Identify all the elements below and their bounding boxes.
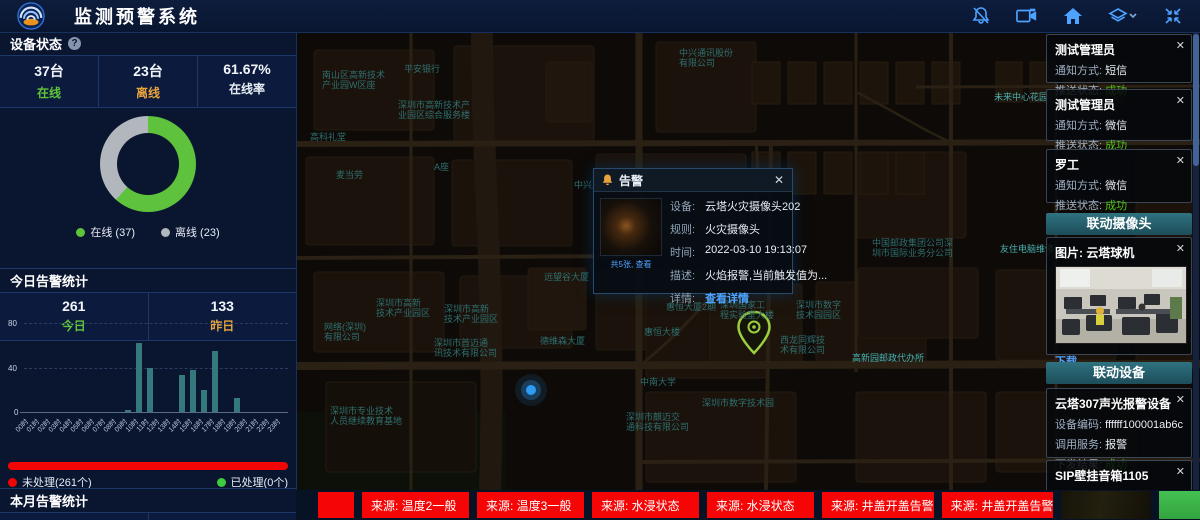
- field-value: 微信: [1105, 180, 1127, 192]
- stat-label: 在线率: [198, 80, 296, 97]
- device-status-stats: 37台在线23台离线61.67%在线率: [0, 56, 296, 108]
- map-place-label: 高新园邮政代办所: [852, 353, 924, 363]
- linked-device-card: ✕云塔307声光报警设备设备编码: ffffff100001ab6c调用服务: …: [1046, 388, 1192, 458]
- notification-field: 通知方式: 短信: [1055, 62, 1183, 78]
- linked-device-header: 联动设备: [1046, 362, 1192, 384]
- map-place-label: 深圳市麒迈交 通科技有限公司: [626, 412, 689, 432]
- field-value: 报警: [1105, 439, 1127, 451]
- map-place-label: A座: [434, 162, 449, 172]
- camera-snapshot-image[interactable]: [1055, 266, 1187, 344]
- video-camera-icon[interactable]: [1016, 6, 1038, 26]
- field-label: 详情:: [670, 290, 700, 306]
- field-value: 2022-03-10 19:13:07: [705, 244, 807, 260]
- map-place-label: 平安银行: [404, 64, 440, 74]
- ticker-alarm-item[interactable]: 来源: 温度3一般: [477, 492, 584, 518]
- ticker-alarm-item[interactable]: 来源: 井盖开盖告警: [942, 492, 1054, 518]
- left-stats-panel: 设备状态 ? 37台在线23台离线61.67%在线率 在线 (37)离线 (23…: [0, 32, 297, 520]
- today-alarms-header: 今日告警统计: [0, 268, 296, 293]
- stat-cell: 37台在线: [0, 56, 99, 107]
- popup-close-icon[interactable]: ✕: [774, 173, 784, 187]
- map-place-label: 中南大学: [640, 377, 676, 387]
- monitoring-dashboard: 监测预警系统: [0, 0, 1200, 520]
- alarm-bell-icon: [602, 174, 613, 186]
- map-place-label: 南山区高新技术 产业园W区座: [322, 70, 385, 90]
- field-value: 火灾摄像头: [705, 221, 760, 237]
- field-value: 微信: [1105, 120, 1127, 132]
- notification-name: 罗工: [1055, 156, 1183, 173]
- month-alarms-header: 本月告警统计: [0, 488, 296, 513]
- device-name: SIP壁挂音箱1105: [1055, 467, 1183, 484]
- device-status-donut-chart: [100, 116, 196, 212]
- alarm-fields: 设备:云塔火灾摄像头202规则:火灾摄像头时间:2022-03-10 19:13…: [670, 198, 827, 313]
- map-place-label: 中兴通讯股份 有限公司: [679, 48, 733, 68]
- month-alarms-section: 本月告警统计 7631146: [0, 488, 296, 520]
- linked-camera-header: 联动摄像头: [1046, 213, 1192, 235]
- field-label: 规则:: [670, 221, 700, 237]
- hourly-alarm-bar-chart: 8040000时01时02时03时04时05时06时07时08时09时10时11…: [0, 310, 296, 450]
- app-header: 监测预警系统: [0, 0, 1200, 33]
- ticker-alarm-item[interactable]: 来源: 水浸状态: [707, 492, 814, 518]
- bar: [136, 343, 142, 412]
- close-icon[interactable]: ✕: [1176, 39, 1185, 52]
- close-icon[interactable]: ✕: [1176, 94, 1185, 107]
- close-icon[interactable]: ✕: [1176, 465, 1185, 478]
- device-status-header: 设备状态 ?: [0, 32, 296, 56]
- ticker-alarm-item[interactable]: 来源: 井盖开盖告警: [822, 492, 934, 518]
- alarm-popup-header: 告警 ✕: [594, 169, 792, 192]
- ticker-alarm-item[interactable]: 来源: 温度2一般: [362, 492, 469, 518]
- y-tick-label: 80: [8, 319, 17, 328]
- map-place-label: 网络(深圳) 有限公司: [324, 322, 366, 342]
- red-dot-icon: [8, 478, 17, 487]
- help-icon[interactable]: ?: [68, 37, 81, 50]
- y-tick-label: 40: [8, 364, 17, 373]
- home-icon[interactable]: [1062, 6, 1084, 26]
- alarm-snapshot-wrap: 共5张, 查看: [600, 198, 662, 313]
- alarm-ticker: 来源: 温度2一般来源: 温度3一般来源: 水浸状态来源: 水浸状态来源: 井盖…: [296, 490, 1200, 520]
- map-place-label: 未来中心花园: [994, 92, 1048, 102]
- map-place-label: 深圳市数字技术园: [702, 398, 774, 408]
- bar: [125, 410, 131, 412]
- today-alarms-title: 今日告警统计: [10, 271, 88, 290]
- notification-card: ✕测试管理员通知方式: 微信推送状态: 成功: [1046, 89, 1192, 141]
- bar: [190, 370, 196, 412]
- stat-value: 61.67%: [198, 61, 296, 77]
- field-value: 成功: [1105, 200, 1127, 212]
- right-scrollbar: [1193, 32, 1199, 490]
- stat-value: 23台: [99, 61, 197, 81]
- map-place-label: 远望谷大厦: [544, 272, 589, 282]
- unhandled-progress-bar: [8, 462, 288, 470]
- page-title: 监测预警系统: [74, 3, 200, 29]
- stat-cell: 61.67%在线率: [198, 56, 296, 107]
- map-place-label: 西龙同辉技 术有限公司: [780, 335, 825, 355]
- field-value: ffffff100001ab6c: [1105, 419, 1183, 431]
- ticker-alarm-item[interactable]: 来源: 水浸状态: [592, 492, 699, 518]
- alarm-location-dot[interactable]: [515, 374, 547, 406]
- alarm-field-row: 规则:火灾摄像头: [670, 221, 827, 237]
- layers-icon[interactable]: [1108, 6, 1138, 26]
- map-place-label: 麦当劳: [336, 170, 363, 180]
- alarm-popup: 告警 ✕ 共5张, 查看 设备:云塔火灾摄像头202规则:火灾摄像头时间:202…: [593, 168, 793, 294]
- app-logo-icon: [14, 2, 48, 30]
- stat-value: 37台: [0, 61, 98, 81]
- snapshot-count-link[interactable]: 共5张, 查看: [600, 259, 662, 270]
- bar: [234, 398, 240, 412]
- fullscreen-icon[interactable]: [1162, 6, 1184, 26]
- device-field: 调用服务: 报警: [1055, 436, 1183, 452]
- close-icon[interactable]: ✕: [1176, 154, 1185, 167]
- legend-label: 离线 (23): [175, 224, 220, 240]
- bar: [212, 351, 218, 412]
- field-value: 火焰报警,当前触发值为...: [705, 267, 827, 283]
- legend-dot-icon: [161, 228, 170, 237]
- month-alarms-stats: 7631146: [0, 513, 296, 520]
- field-label: 时间:: [670, 244, 700, 260]
- alarm-field-row: 描述:火焰报警,当前触发值为...: [670, 267, 827, 283]
- stat-cell: 763: [0, 513, 149, 520]
- legend-item[interactable]: 离线 (23): [161, 224, 220, 240]
- notification-field: 通知方式: 微信: [1055, 177, 1183, 193]
- field-value: 云塔火灾摄像头202: [705, 198, 800, 214]
- alarm-popup-body: 共5张, 查看 设备:云塔火灾摄像头202规则:火灾摄像头时间:2022-03-…: [594, 192, 792, 313]
- notification-field: 通知方式: 微信: [1055, 117, 1183, 133]
- map-place-label: 深圳市首迈通 讯技术有限公司: [434, 338, 497, 358]
- field-value: 短信: [1105, 65, 1127, 77]
- month-alarms-title: 本月告警统计: [10, 491, 88, 510]
- stat-label: 离线: [99, 84, 197, 101]
- y-tick-label: 0: [14, 408, 18, 417]
- legend-item[interactable]: 在线 (37): [76, 224, 135, 240]
- map-place-label: 中国邮政集团公司深 圳市国际业务分公司: [872, 238, 953, 258]
- alarm-field-row: 设备:云塔火灾摄像头202: [670, 198, 827, 214]
- view-detail-link[interactable]: 查看详情: [705, 290, 749, 306]
- stat-cell: 1146: [149, 513, 297, 520]
- bar: [179, 375, 185, 412]
- map-place-label: 深圳市专业技术 人员继续教育基地: [330, 406, 402, 426]
- map-place-label: 德维森大厦: [540, 336, 585, 346]
- camera-snapshot-card: ✕ 图片: 云塔球机: [1046, 237, 1192, 355]
- camera-card-title: 图片: 云塔球机: [1055, 244, 1183, 261]
- legend-label: 在线 (37): [90, 224, 135, 240]
- close-icon[interactable]: ✕: [1176, 242, 1185, 255]
- gridline: [24, 368, 288, 369]
- field-label: 描述:: [670, 267, 700, 283]
- map-place-label: 深圳市高新技术产 业园区综合服务楼: [398, 100, 470, 120]
- donut-legend: 在线 (37)离线 (23): [0, 224, 296, 240]
- notification-card: ✕测试管理员通知方式: 短信推送状态: 成功: [1046, 34, 1192, 83]
- notification-name: 测试管理员: [1055, 41, 1183, 58]
- stat-label: 在线: [0, 84, 98, 101]
- field-label: 设备:: [670, 198, 700, 214]
- close-icon[interactable]: ✕: [1176, 393, 1185, 406]
- notification-name: 测试管理员: [1055, 96, 1183, 113]
- right-notification-panel: ✕测试管理员通知方式: 短信推送状态: 成功✕测试管理员通知方式: 微信推送状态…: [1046, 32, 1192, 520]
- bar: [201, 390, 207, 412]
- notification-card: ✕罗工通知方式: 微信推送状态: 成功: [1046, 149, 1192, 203]
- bar: [147, 368, 153, 413]
- header-toolbar: [970, 0, 1184, 32]
- alarm-field-row: 时间:2022-03-10 19:13:07: [670, 244, 827, 260]
- ticker-camera-thumbnail[interactable]: [1061, 491, 1151, 519]
- notification-field: 推送状态: 成功: [1055, 197, 1183, 213]
- stat-cell: 23台离线: [99, 56, 198, 107]
- chevron-down-icon: [1130, 14, 1136, 17]
- alarm-field-row: 详情:查看详情: [670, 290, 827, 306]
- device-field: 设备编码: ffffff100001ab6c: [1055, 416, 1183, 432]
- device-name: 云塔307声光报警设备: [1055, 395, 1183, 412]
- bell-off-icon[interactable]: [970, 6, 992, 26]
- gridline: [24, 323, 288, 324]
- map-place-label: 深圳市高新 技术产业园区: [444, 304, 498, 324]
- device-status-title: 设备状态: [10, 34, 62, 53]
- alarm-snapshot-image[interactable]: [600, 198, 662, 256]
- x-axis-line: [20, 412, 288, 413]
- map-place-label: 高科礼堂: [310, 132, 346, 142]
- legend-dot-icon: [76, 228, 85, 237]
- map-place-label: 惠恒大楼: [644, 327, 680, 337]
- map-place-label: 深圳市高新 技术产业园区: [376, 298, 430, 318]
- green-dot-icon: [217, 478, 226, 487]
- ticker-alarm-item[interactable]: [318, 492, 354, 518]
- alarm-popup-title: 告警: [619, 172, 643, 189]
- ticker-green-thumbnail[interactable]: [1159, 491, 1200, 519]
- scrollbar-thumb[interactable]: [1193, 34, 1199, 166]
